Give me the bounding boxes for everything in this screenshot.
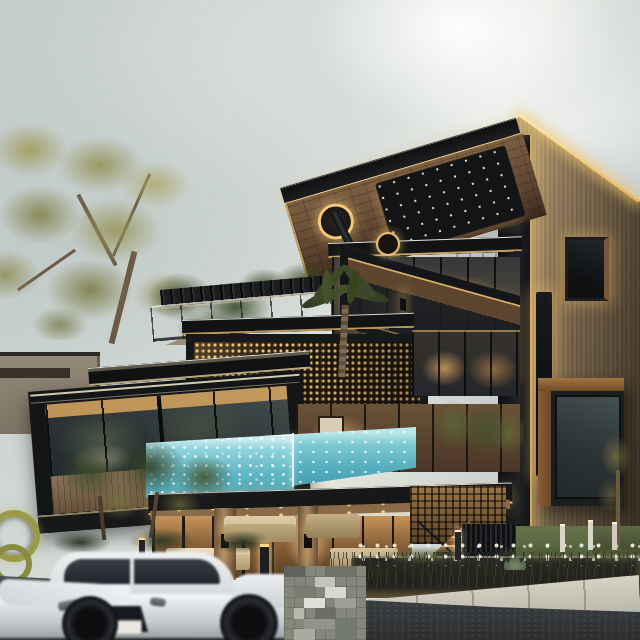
canopy-ring-light-2 <box>376 232 400 256</box>
car-glass <box>64 559 220 584</box>
watermark-pixel <box>304 598 325 608</box>
palm-frond <box>322 270 332 304</box>
bollard-light <box>455 530 461 560</box>
watermark-pixel <box>294 608 304 619</box>
watermark-mosaic <box>284 566 366 640</box>
box-window-wood-side <box>538 391 551 506</box>
watermark-pixel <box>335 619 356 640</box>
courtyard-trees <box>424 386 524 472</box>
garden-tree-canopy <box>40 432 240 532</box>
watermark-pixel <box>304 619 335 629</box>
car-pillar <box>130 559 134 584</box>
watermark-pixel <box>315 608 335 619</box>
bay-sconce-light <box>400 298 406 312</box>
watermark-pixel <box>335 598 356 608</box>
sports-car <box>0 548 325 640</box>
watermark-pixel <box>325 587 346 598</box>
bollard-light <box>588 520 593 550</box>
tower-square-window <box>565 237 609 301</box>
watermark-pixel <box>315 577 335 587</box>
neighbor-roof <box>0 368 70 378</box>
villa-dusk-photo <box>0 0 640 640</box>
watermark-pixel <box>294 629 315 640</box>
pool-corner-edge <box>292 433 294 487</box>
bollard-light <box>612 522 617 550</box>
box-window-wood-top <box>538 378 624 391</box>
bollard-light <box>560 524 565 552</box>
watermark-pixel <box>325 566 356 577</box>
outdoor-sofa <box>306 514 360 538</box>
watermark-pixel <box>294 587 315 598</box>
watermark-pixel <box>284 566 305 577</box>
